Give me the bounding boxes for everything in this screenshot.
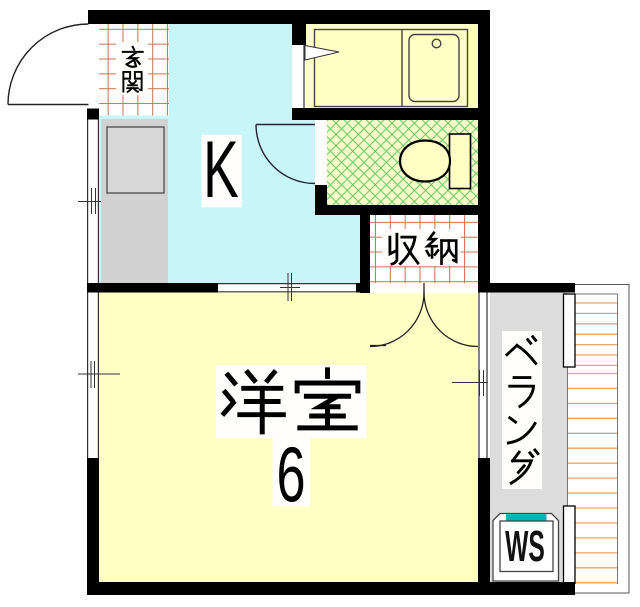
- svg-text:WS: WS: [505, 522, 545, 571]
- svg-text:6: 6: [276, 432, 305, 519]
- svg-text:K: K: [203, 124, 239, 215]
